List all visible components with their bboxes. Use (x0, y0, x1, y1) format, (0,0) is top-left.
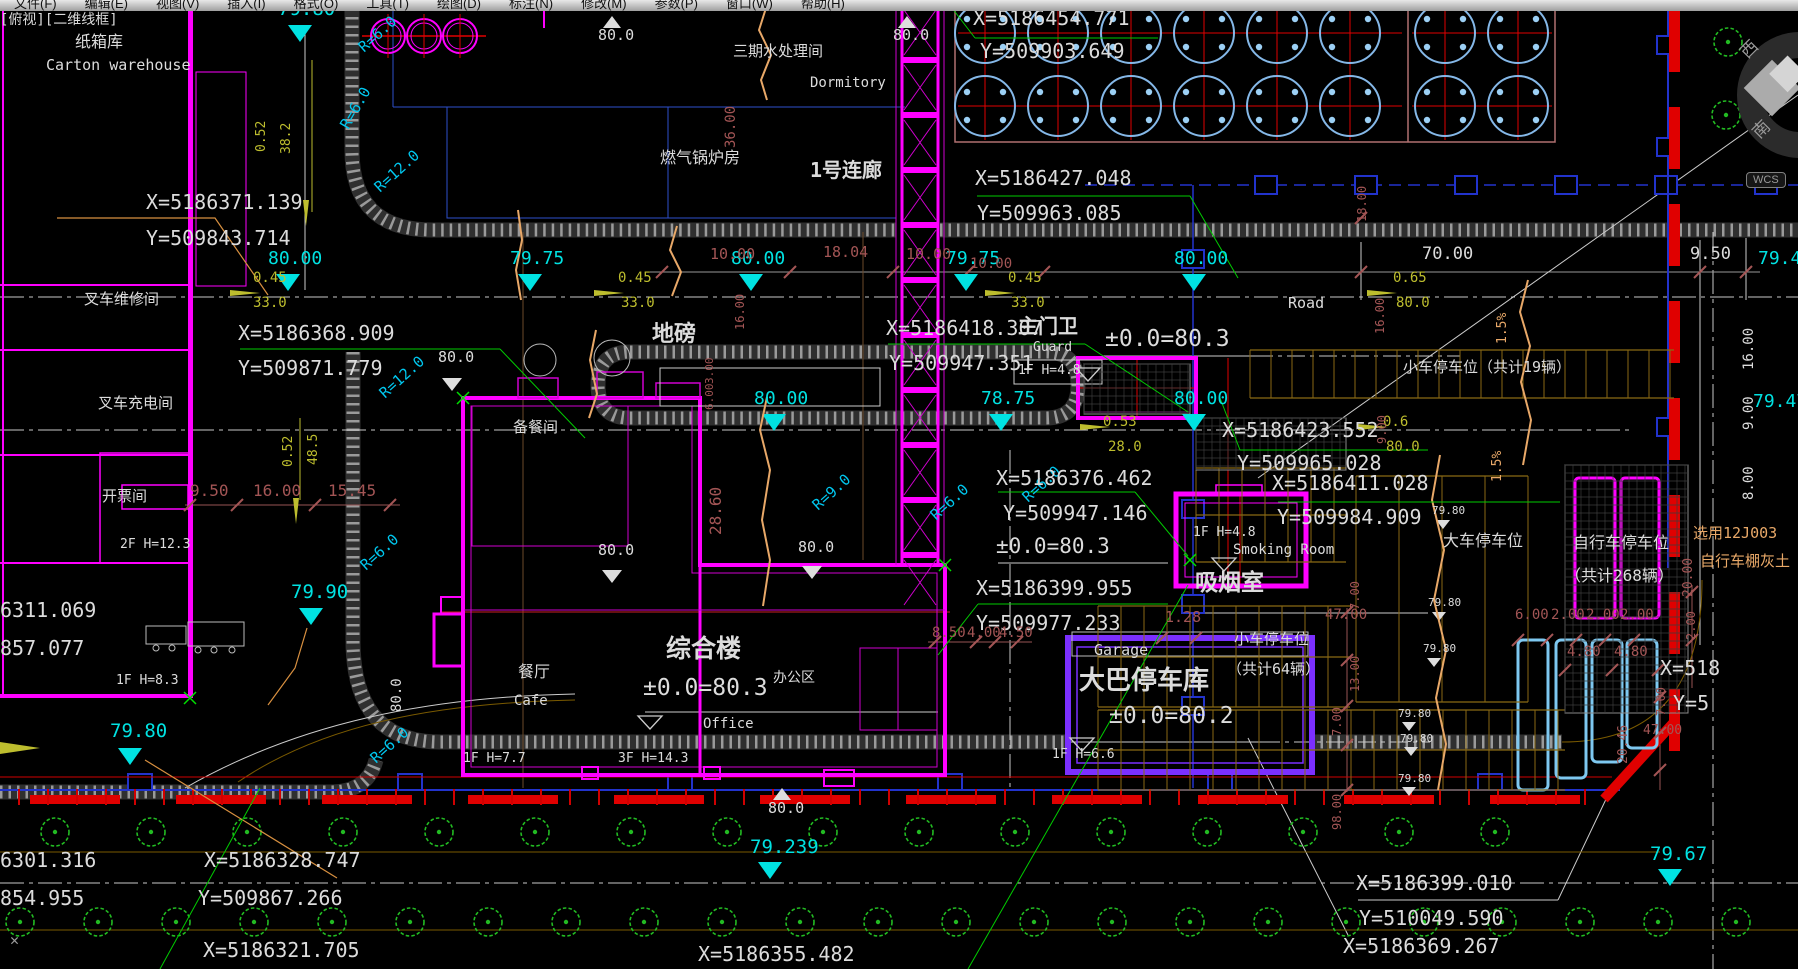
menu-item-1[interactable]: 编辑(E) (85, 0, 128, 11)
menu-item-10[interactable]: 窗口(W) (726, 0, 773, 11)
menu-item-2[interactable]: 视图(V) (156, 0, 199, 11)
wcs-indicator[interactable]: WCS (1746, 172, 1786, 188)
menu-item-5[interactable]: 工具(T) (366, 0, 409, 11)
menu-item-8[interactable]: 修改(M) (581, 0, 627, 11)
menu-item-9[interactable]: 参数(P) (655, 0, 698, 11)
menu-item-0[interactable]: 文件(F) (14, 0, 57, 11)
menu-item-11[interactable]: 帮助(H) (801, 0, 845, 11)
site-plan-geometry (0, 0, 1798, 969)
cad-drawing-canvas[interactable]: 文件(F)编辑(E)视图(V)插入(I)格式(O)工具(T)绘图(D)标注(N)… (0, 0, 1798, 969)
menu-item-3[interactable]: 插入(I) (227, 0, 265, 11)
menu-item-7[interactable]: 标注(N) (509, 0, 553, 11)
menu-bar: 文件(F)编辑(E)视图(V)插入(I)格式(O)工具(T)绘图(D)标注(N)… (0, 0, 1798, 11)
menu-item-4[interactable]: 格式(O) (294, 0, 339, 11)
menu-item-6[interactable]: 绘图(D) (437, 0, 481, 11)
